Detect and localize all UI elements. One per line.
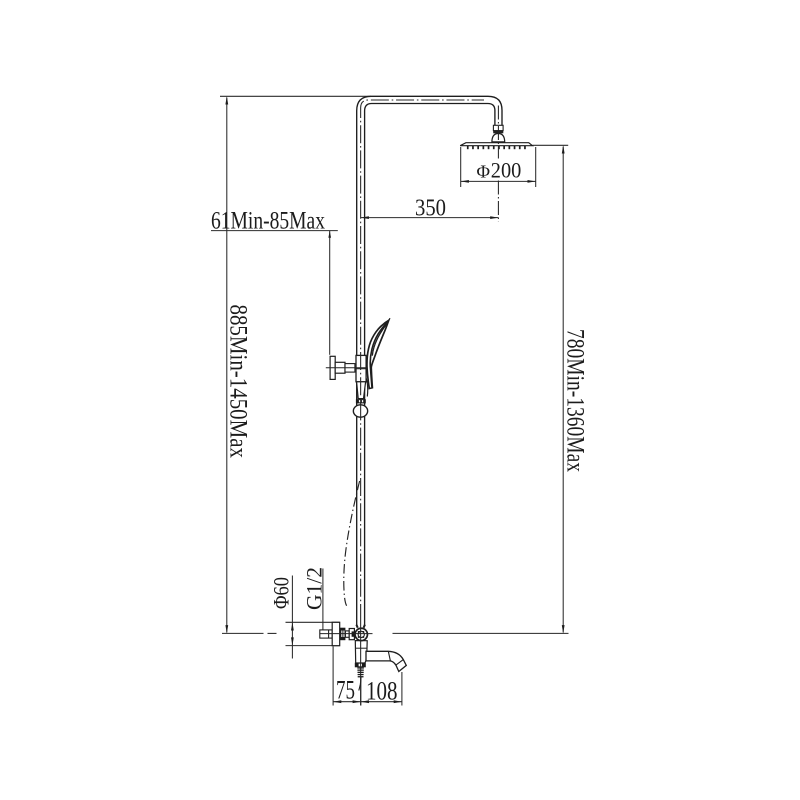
svg-text:885Min-1450Max: 885Min-1450Max (224, 305, 251, 459)
svg-text:780Min-1360Max: 780Min-1360Max (561, 329, 588, 472)
svg-text:200: 200 (491, 158, 522, 183)
svg-text:75: 75 (336, 676, 355, 705)
svg-text:G1/2: G1/2 (302, 567, 327, 610)
svg-text:108: 108 (366, 676, 398, 705)
svg-text:Φ60: Φ60 (269, 577, 294, 609)
svg-text:350: 350 (415, 196, 446, 222)
svg-text:Φ: Φ (477, 162, 491, 182)
svg-text:61Min-85Max: 61Min-85Max (211, 208, 325, 235)
